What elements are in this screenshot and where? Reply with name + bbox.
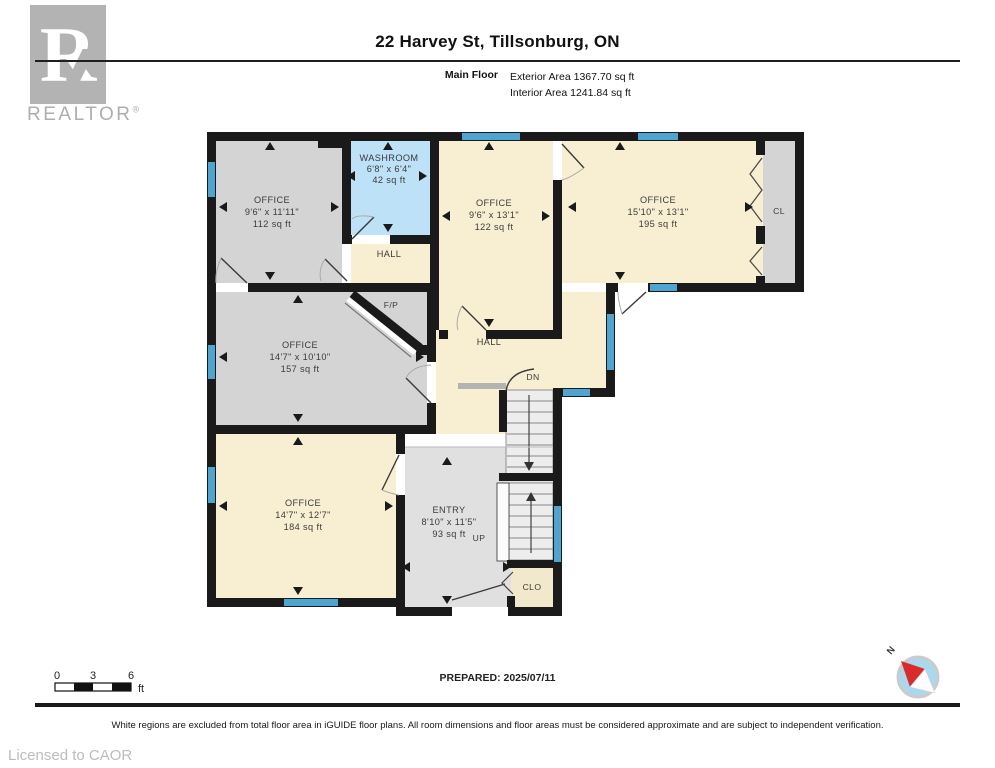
room-label-dims: 9'6" x 13'1"	[469, 210, 519, 220]
realtor-logo: R	[30, 5, 106, 104]
room-label-name: WASHROOM	[359, 153, 418, 163]
room-label-area: 184 sq ft	[284, 522, 323, 532]
room-label-name: UP	[473, 533, 486, 543]
header-rule	[35, 60, 960, 62]
window	[554, 506, 561, 562]
window	[208, 345, 215, 379]
room-label-dims: 6'8" x 6'4"	[367, 164, 412, 174]
room-label-area: 93 sq ft	[432, 529, 465, 539]
realtor-wordmark: REALTOR®	[27, 104, 142, 126]
stair-railing	[497, 483, 509, 561]
room-label-name: HALL	[477, 337, 502, 347]
stairs-down-unit	[506, 390, 553, 477]
compass-north-label: N	[885, 644, 898, 656]
window	[462, 133, 520, 140]
window	[208, 162, 215, 197]
room-label-name: DN	[526, 372, 539, 382]
room-label-area: 42 sq ft	[372, 175, 405, 185]
compass-icon: N	[885, 644, 938, 697]
room-label-dims: 9'6" x 11'11"	[245, 207, 299, 217]
room-label-dims: 14'7" x 12'7"	[275, 510, 331, 520]
room-label-name: OFFICE	[476, 198, 512, 208]
room-label-area: 122 sq ft	[475, 222, 514, 232]
scale-unit: ft	[138, 683, 144, 695]
room-label-name: OFFICE	[285, 498, 321, 508]
prepared-date: PREPARED: 2025/07/11	[0, 672, 995, 684]
window	[607, 314, 614, 370]
floor-plan: OFFICE 9'6" x 11'11" 112 sq ft WASHROOM …	[0, 0, 995, 768]
stairs-up-unit	[497, 483, 553, 561]
room-label-name: OFFICE	[282, 340, 318, 350]
window	[563, 389, 590, 396]
footer-rule	[35, 703, 960, 707]
room-label-name: ENTRY	[433, 505, 466, 515]
room-label-area: 157 sq ft	[281, 364, 320, 374]
room-label-dims: 14'7" x 10'10"	[269, 352, 330, 362]
room-label-name: OFFICE	[640, 195, 676, 205]
half-wall-railing	[458, 383, 506, 389]
room-label-name: OFFICE	[254, 195, 290, 205]
disclaimer-text: White regions are excluded from total fl…	[0, 720, 995, 731]
room-label-name: CLO	[523, 582, 542, 592]
room-label-dims: 8'10" x 11'5"	[422, 517, 477, 527]
license-text: Licensed to CAOR	[8, 747, 132, 764]
room-label-area: 195 sq ft	[639, 219, 678, 229]
room-label-area: 112 sq ft	[253, 219, 291, 229]
window	[208, 467, 215, 503]
window	[650, 284, 677, 291]
room-label-name: F/P	[384, 300, 399, 310]
room-label-dims: 15'10" x 13'1"	[627, 207, 688, 217]
window	[638, 133, 678, 140]
room-label-name: CL	[773, 206, 785, 216]
room-label-name: HALL	[377, 249, 402, 259]
window	[284, 599, 338, 606]
